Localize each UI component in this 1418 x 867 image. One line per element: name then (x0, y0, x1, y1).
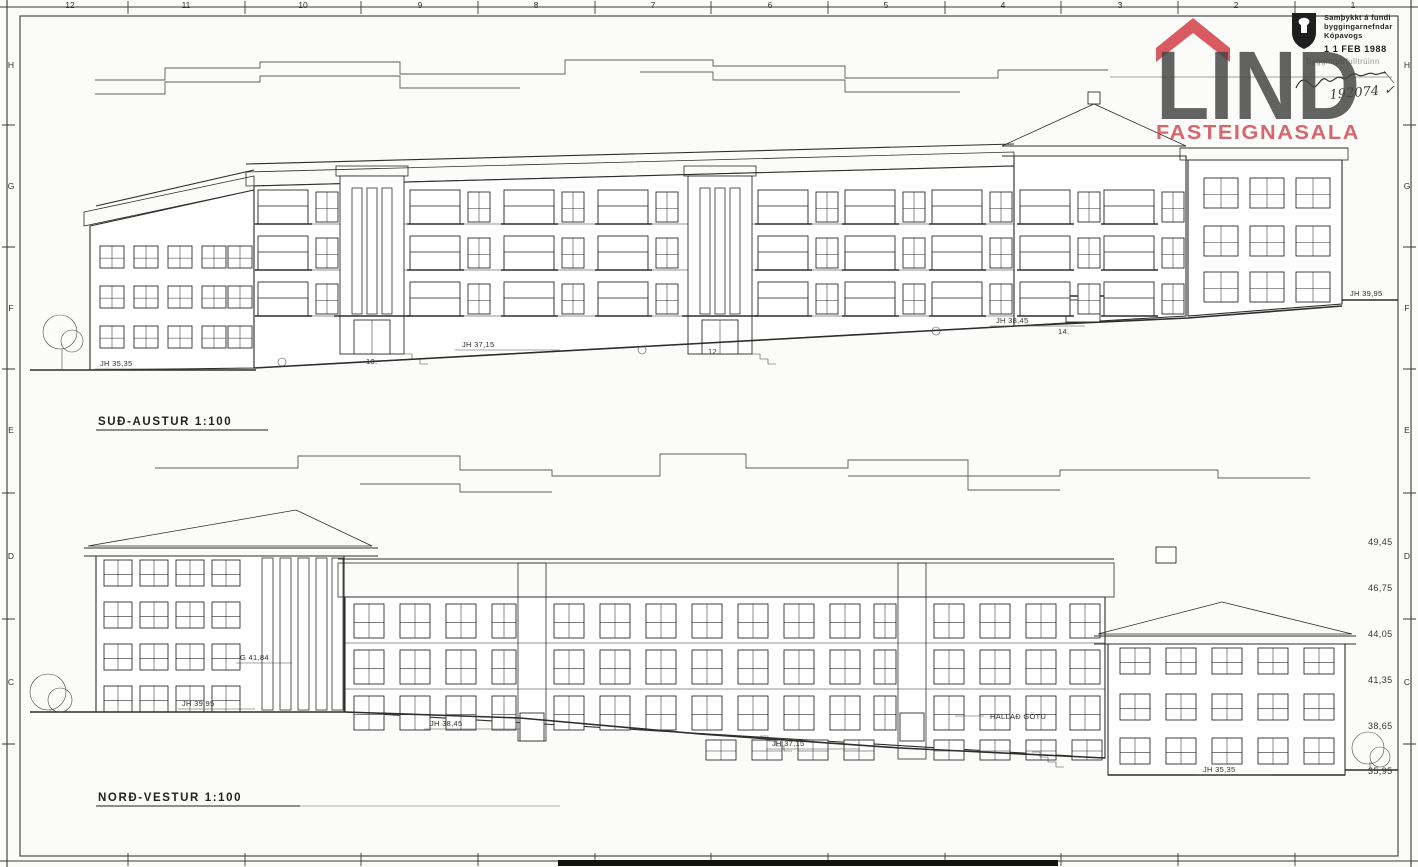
balcony-opening (410, 282, 460, 316)
level-annotation: JH 35,35 (100, 359, 132, 368)
chimney (1088, 92, 1100, 104)
chimney (1156, 547, 1176, 563)
balcony-opening (1020, 282, 1070, 316)
elevation-title-nord-vestur: NORÐ-VESTUR 1:100 (98, 792, 242, 804)
lind-logo: LIND FASTEIGNASALA (1156, 18, 1360, 144)
lind-logo-subtitle: FASTEIGNASALA (1156, 122, 1360, 144)
grid-number: 6 (768, 0, 773, 10)
background-roofline-2 (95, 72, 960, 94)
grid-number: 4 (1001, 0, 1006, 10)
entry-steps (752, 354, 776, 364)
balcony-opening (932, 282, 982, 316)
right-block-roofband (1180, 148, 1348, 160)
grid-number: 7 (651, 0, 656, 10)
background-roofline (155, 454, 1310, 478)
balcony-opening (758, 282, 808, 316)
stamp-line-1: Samþykkt á fundi (1324, 13, 1391, 22)
balcony-opening (504, 236, 554, 270)
tree-icon (43, 315, 77, 349)
left-block-roof (88, 510, 372, 546)
grid-top-numbers: 12 11 10 9 8 7 6 5 4 3 2 1 (65, 0, 1355, 10)
level-annotation: JH 38,45 (996, 316, 1028, 325)
balcony-opening (258, 282, 308, 316)
height-value: 35,95 (1368, 766, 1393, 776)
height-value: 38,65 (1368, 721, 1393, 731)
balcony-opening (258, 236, 308, 270)
balcony-opening (1104, 282, 1154, 316)
grid-letter: E (1404, 425, 1410, 435)
blueprint-scan: 12 11 10 9 8 7 6 5 4 3 2 1 H G F E D C H… (0, 0, 1418, 867)
long-roof-band (338, 563, 1114, 597)
house-number: 14. (1058, 327, 1069, 336)
level-annotation: JH 39,95 (1350, 289, 1382, 298)
level-annotation: JH 35,35 (1203, 765, 1235, 774)
grid-number: 12 (65, 0, 75, 10)
height-value: 41,35 (1368, 675, 1393, 685)
grid-letter: G (8, 181, 15, 191)
balcony-opening (845, 190, 895, 224)
grid-letter: D (8, 551, 14, 561)
grid-letter: C (1404, 677, 1410, 687)
grid-number: 11 (182, 0, 191, 10)
level-annotation: JH 37,15 (462, 340, 494, 349)
right-eave-band (1094, 636, 1356, 644)
house-number: 12. (708, 347, 719, 356)
elevation-nord-vestur: G 41,84 JH 39,95 JH 38,45 JH 37,15 HALLA… (30, 454, 1398, 806)
balcony-opening (1104, 190, 1154, 224)
long-roof-eave (246, 144, 1014, 164)
balcony-opening (598, 190, 648, 224)
left-eave-band (84, 548, 378, 556)
balcony-opening (598, 236, 648, 270)
height-value: 46,75 (1368, 583, 1393, 593)
grid-letter: G (1404, 181, 1411, 191)
balcony-opening (504, 282, 554, 316)
right-block-roof (1098, 602, 1352, 634)
titleblock-edge (558, 860, 1058, 866)
tree-icon (1352, 732, 1384, 764)
check-mark-icon: ✓ (1384, 83, 1395, 98)
elevation-title-sud-austur: SUÐ-AUSTUR 1:100 (98, 416, 232, 428)
balcony-opening (932, 236, 982, 270)
grid-right-letters: H G F E D C (1404, 60, 1411, 687)
balcony-opening (845, 236, 895, 270)
height-scale: 49,45 46,75 44,05 41,35 38,65 35,95 (1368, 537, 1393, 776)
grid-letter: H (1404, 60, 1410, 70)
entry-door (520, 713, 544, 741)
tree-icon (48, 688, 72, 712)
balcony-opening (1020, 236, 1070, 270)
background-roofline-2 (360, 476, 1060, 492)
house-number: 10. (366, 357, 377, 366)
level-annotation: JH 39,95 (182, 699, 214, 708)
balcony-opening (258, 190, 308, 224)
grid-letter: H (8, 60, 14, 70)
tree-icon (61, 330, 83, 352)
grid-number: 3 (1118, 0, 1123, 10)
background-roofline (95, 60, 1108, 80)
tree-icon (1370, 747, 1390, 767)
stair-parapet (336, 166, 408, 176)
balcony-opening (410, 236, 460, 270)
stamp-line-2: byggingarnefndar (1324, 22, 1393, 31)
level-annotation: JH 37,15 (772, 739, 804, 748)
grid-letter: D (1404, 551, 1410, 561)
balcony-opening (932, 190, 982, 224)
entry-door (900, 713, 924, 741)
grid-number: 5 (884, 0, 889, 10)
grid-letter: E (8, 425, 14, 435)
balcony-opening (758, 190, 808, 224)
grid-letter: F (8, 303, 13, 313)
grid-letter: C (8, 677, 14, 687)
balcony-opening (598, 282, 648, 316)
balcony-opening (504, 190, 554, 224)
balcony-opening (1104, 236, 1154, 270)
height-value: 49,45 (1368, 537, 1393, 547)
balcony-opening (845, 282, 895, 316)
balcony-opening (1020, 190, 1070, 224)
gable-eave-band (1002, 146, 1186, 156)
grid-left-letters: H G F E D C (8, 60, 15, 687)
architectural-drawing: 12 11 10 9 8 7 6 5 4 3 2 1 H G F E D C H… (0, 0, 1418, 867)
grid-number: 9 (418, 0, 423, 10)
grid-number: 8 (534, 0, 539, 10)
balcony-opening (410, 190, 460, 224)
tree-icon (30, 674, 66, 710)
balcony-opening (758, 236, 808, 270)
grid-number: 1 (1351, 0, 1356, 10)
level-annotation: JH 38,45 (430, 719, 462, 728)
grid-number: 10 (298, 0, 308, 10)
grid-letter: F (1404, 303, 1409, 313)
street-annotation: HALLAÐ GÖTU (990, 712, 1046, 721)
grid-number: 2 (1234, 0, 1239, 10)
height-value: 44,05 (1368, 629, 1393, 639)
level-annotation: G 41,84 (240, 653, 269, 662)
